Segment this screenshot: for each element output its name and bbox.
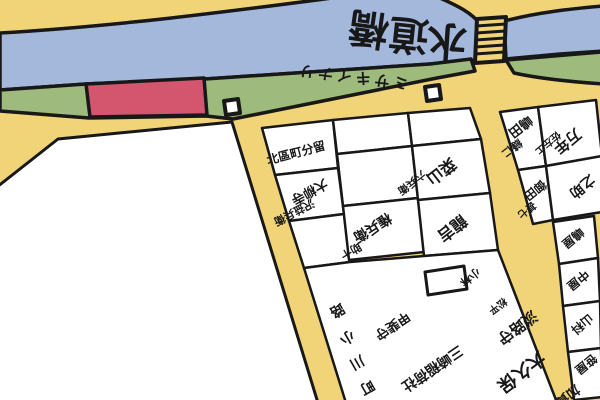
bridge-rung xyxy=(476,38,505,40)
river-label-char-1: 道 xyxy=(387,12,431,56)
bridge-suidobashi xyxy=(475,17,506,63)
shrine-marker-east xyxy=(425,85,441,101)
illustrated-map: 水 道 橋 ミサキイナリ 路 小 川 町 北區町分留 大柳寺 沢益兵衛 権兵衛 … xyxy=(0,0,600,400)
shrine-site-red-block xyxy=(86,78,207,117)
river-label-char-0: 水 xyxy=(426,19,469,62)
bridge-rung xyxy=(476,31,505,33)
plot-block-b2 xyxy=(337,146,418,206)
river-label-char-2: 橋 xyxy=(346,5,391,50)
bridge-rung xyxy=(475,45,504,47)
bridge-rung xyxy=(477,24,506,26)
bridge-rung xyxy=(475,52,504,54)
shrine-marker-west xyxy=(224,99,240,115)
